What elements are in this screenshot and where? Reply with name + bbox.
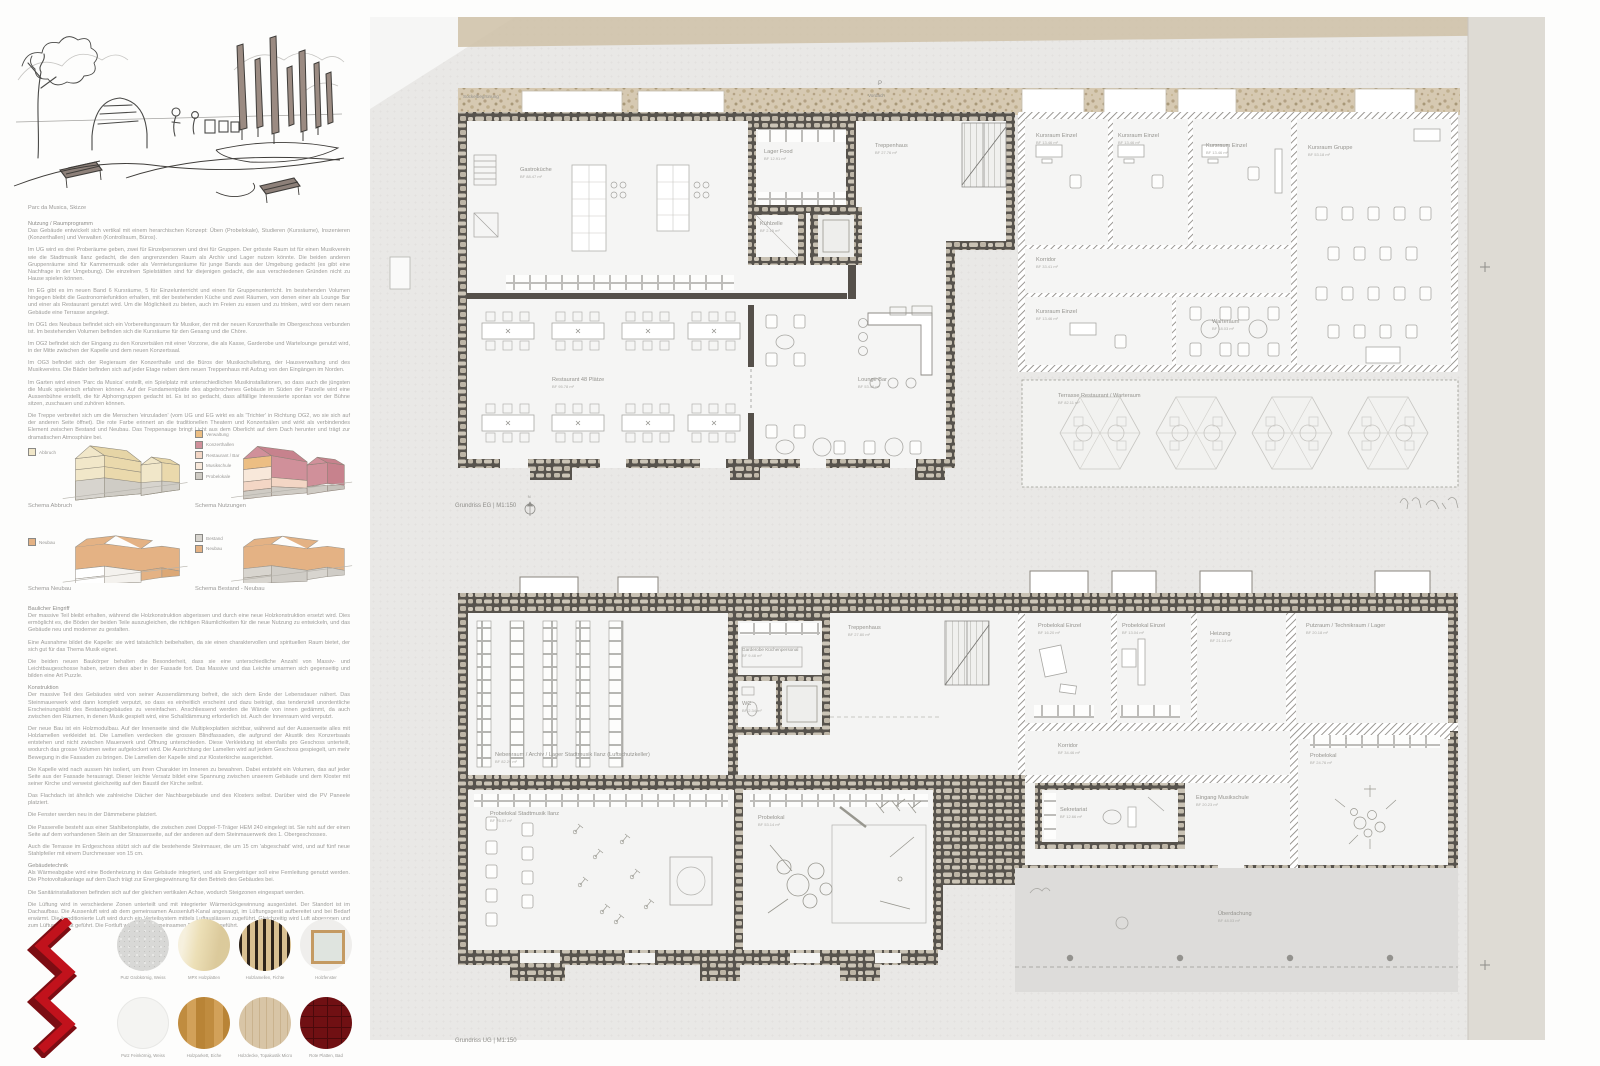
paragraph: Im OG2 befindet sich der Eingang zu den … [28, 341, 350, 355]
paragraph: Die Kapelle wird nach aussen hin isolier… [28, 767, 350, 788]
section-heading: Gebäudetechnik [28, 863, 350, 870]
window-frame-icon [311, 930, 345, 964]
material-caption: Holzfenster [288, 975, 364, 980]
ug-plan-caption: Grundriss UG | M1:150 [455, 1038, 517, 1044]
text-nutzung: Nutzung / Raumprogramm Das Gebäude entwi… [28, 221, 350, 447]
paragraph: Eine Ausnahme bildet die Kapelle: sie wi… [28, 640, 350, 654]
paragraph: Im Garten wird einen 'Parc da Musica' er… [28, 380, 350, 409]
label-vordach: Vordach [868, 93, 885, 98]
paragraph: Die Fenster werden neu in der Dämmebene … [28, 812, 350, 819]
north-label: N [528, 495, 531, 499]
red-stair-logo [22, 918, 84, 1058]
material-rote-platten [300, 997, 352, 1049]
label-p-icon: P [878, 81, 882, 87]
presentation-board: { "sketch": { "caption": "Parc da Musica… [0, 0, 1600, 1066]
paragraph: Die Sanitärinstallationen befinden sich … [28, 890, 350, 897]
paragraph: Im EG gibt es im neuen Band 6 Kursräume,… [28, 288, 350, 317]
schema-bestand-neubau [228, 515, 356, 583]
paragraph: Als Wärmeabgabe wird eine Bodenheizung i… [28, 870, 350, 884]
schema-neubau [58, 515, 193, 583]
material-mpx [178, 919, 230, 971]
label-sockelbegruenung: Sockelbegrünung [463, 94, 499, 99]
material-caption: Rote Platten, Bad [288, 1053, 364, 1058]
paragraph: Das Gebäude entwickelt sich vertikal mit… [28, 228, 350, 242]
paragraph: Der neue Bau ist ein Holzmodulbau. Auf d… [28, 726, 350, 762]
material-holzfenster [300, 919, 352, 971]
material-putz-fein [117, 997, 169, 1049]
park-sketch [8, 8, 350, 206]
schema-nutzungen-caption: Schema Nutzungen [195, 503, 246, 509]
paragraph: Im OG1 des Neubaus befindet sich ein Vor… [28, 322, 350, 336]
schema-abbruch [58, 425, 193, 501]
paragraph: Der massive Teil des Gebäudes wird von s… [28, 692, 350, 721]
floor-plans-drawing [370, 17, 1545, 1040]
material-holzdecke [239, 997, 291, 1049]
schema-abbruch-caption: Schema Abbruch [28, 503, 72, 509]
material-putz-grob [117, 919, 169, 971]
paragraph: Der massive Teil bleibt erhalten, währen… [28, 613, 350, 634]
legend-bestand-neubau: Bestand Neubau [195, 534, 223, 555]
eg-plan-caption: Grundriss EG | M1:150 [455, 503, 516, 509]
legend-swatch [28, 448, 36, 456]
text-baulich-konstruktion-technik: Baulicher Eingriff Der massive Teil blei… [28, 606, 350, 935]
paragraph: Das Flachdach ist ähnlich wie zahlreiche… [28, 793, 350, 807]
section-heading: Konstruktion [28, 685, 350, 692]
paragraph: Auch die Terrasse im Erdgeschoss stützt … [28, 844, 350, 858]
legend-neubau: Neubau [28, 538, 55, 549]
sketch-caption: Parc da Musica, Skizze [28, 205, 86, 211]
schema-nutzungen [228, 425, 356, 501]
paragraph: Im OG3 befindet sich der Regieraum der K… [28, 360, 350, 374]
paragraph: Im UG wird es drei Proberäume geben, zwe… [28, 247, 350, 283]
material-lamellen [239, 919, 291, 971]
legend-abbruch: Abbruch [28, 448, 56, 459]
paragraph: Die Passerelle besteht aus einer Stahlbe… [28, 825, 350, 839]
section-heading: Baulicher Eingriff [28, 606, 350, 613]
material-parkett [178, 997, 230, 1049]
site-panel: Sockelbegrünung P Vordach GastrokücheBF … [370, 17, 1545, 1040]
schema-neubau-caption: Schema Neubau [28, 586, 71, 592]
schema-bestand-neubau-caption: Schema Bestand - Neubau [195, 586, 265, 592]
paragraph: Die beiden neuen Baukörper behalten die … [28, 659, 350, 680]
